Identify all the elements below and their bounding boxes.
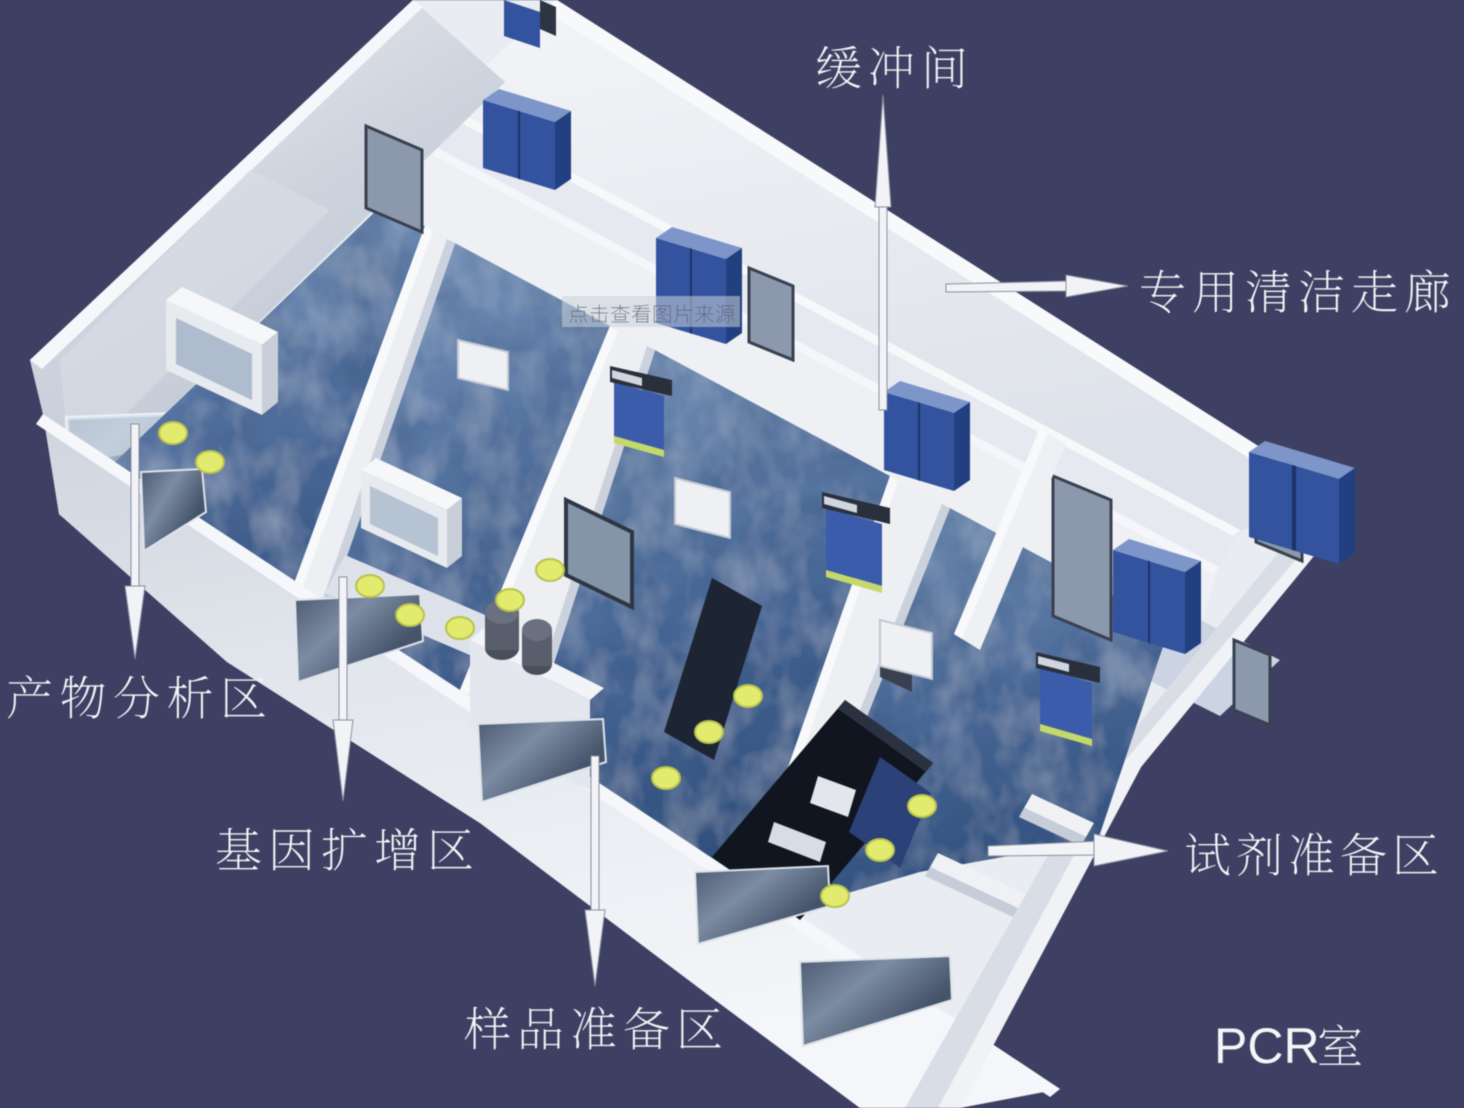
- svg-text:PCR: PCR: [1214, 1018, 1320, 1074]
